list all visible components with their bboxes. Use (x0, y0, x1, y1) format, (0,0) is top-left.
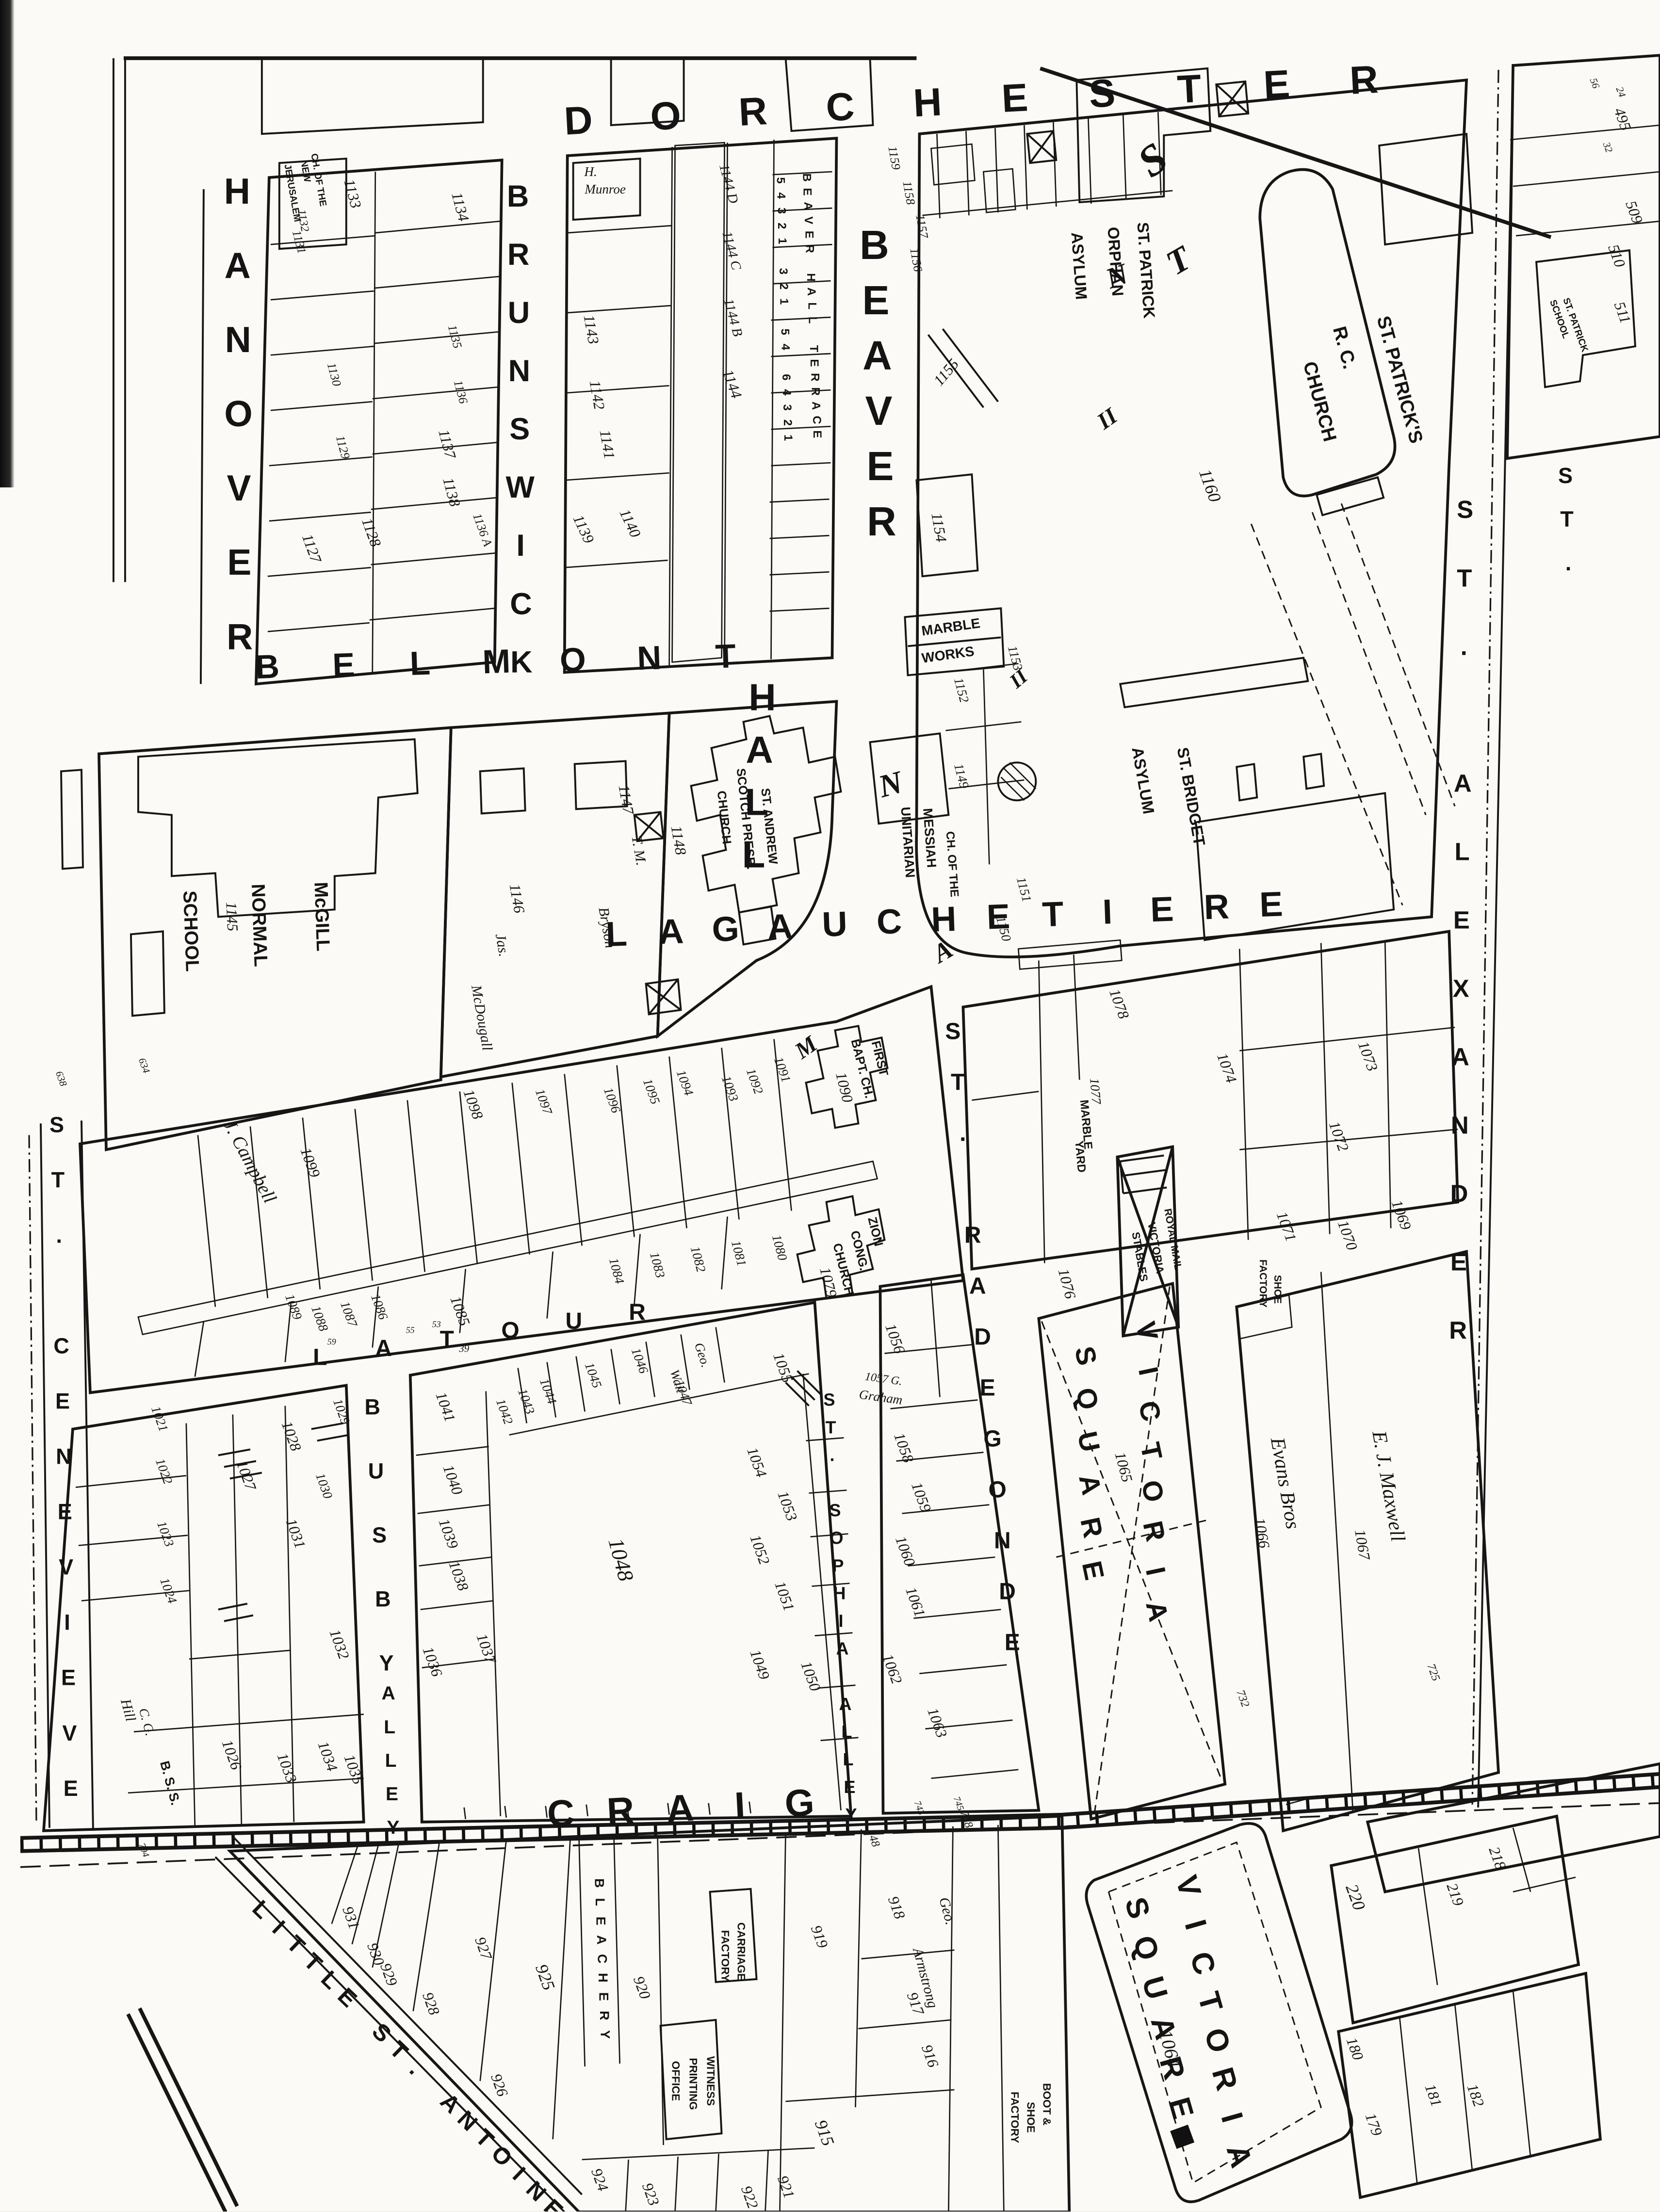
witness-2: PRINTING (687, 2058, 700, 2110)
lot-number-1039: 1039 (435, 1517, 461, 1551)
beaver-hall-terrace-label-glyph-15: R (809, 388, 822, 396)
beaver-hall-terrace-label-glyph-3: V (802, 216, 815, 224)
street-st-cenevieve-glyph-8: V (59, 1555, 73, 1580)
street-st-alexander-glyph-6: E (1453, 906, 1470, 934)
lot-number-1067: 1067 (1351, 1528, 1374, 1562)
square-monument-marker (1170, 2125, 1194, 2149)
lot-number-1033: 1033 (274, 1751, 300, 1785)
lot-number-1032: 1032 (326, 1627, 352, 1662)
lot-number-1095: 1095 (640, 1077, 663, 1106)
street-hanover-glyph-4: V (227, 468, 251, 508)
shoe-factory-1: SHOE (1272, 1275, 1283, 1304)
hanover-west-line (201, 189, 204, 684)
churchyard-dashed-paths (1251, 503, 1455, 905)
victoria-square-upper-line1-glyph-1: I (1132, 1364, 1164, 1378)
street-craig-glyph-3: I (733, 1784, 746, 1827)
street-st-alexander-glyph-5: L (1455, 838, 1470, 865)
beaver-hall-terrace-units: 543213215464321 (774, 177, 795, 441)
street-latour-glyph-5: R (629, 1300, 646, 1325)
lot-number-32: 32 (1600, 140, 1615, 154)
lot-number-1099: 1099 (297, 1145, 323, 1179)
lot-number-1158: 1158 (900, 180, 918, 206)
lot-number-1147: 1147 (615, 784, 637, 816)
lot-number-1086: 1086 (368, 1292, 391, 1322)
street-brunswick-glyph-4: S (509, 412, 530, 446)
lot-number-1146: 1146 (506, 883, 528, 915)
street-latour-glyph-0: L (313, 1345, 327, 1371)
lot-number-1134: 1134 (448, 191, 472, 224)
street-busby-glyph-1: U (368, 1459, 384, 1484)
lot-number-1093: 1093 (719, 1074, 742, 1103)
street-belmont-glyph-0: B (255, 647, 280, 686)
munroe-2: Munroe (584, 182, 625, 196)
lot-number-924: 924 (588, 2166, 612, 2194)
victoria-square-upper (1039, 1284, 1225, 1819)
street-little-st-antoine-glyph-8: T (385, 2036, 413, 2065)
street-little-st-antoine-glyph-14: O (486, 2141, 517, 2172)
lot-number-1049: 1049 (747, 1647, 773, 1682)
lot-number-638: 638 (53, 1069, 69, 1088)
lot-number-927: 927 (472, 1935, 495, 1963)
street-st-sophia-alley-glyph-11: A (839, 1694, 851, 1714)
lot-number-921: 921 (774, 2173, 798, 2200)
st-bridget-1: ST. BRIDGET (1174, 746, 1209, 847)
bleachery-label-glyph-7: R (597, 2011, 612, 2020)
beaver-hall-terrace-units-glyph-10: 5 (779, 328, 792, 335)
page-gutter-shadow (0, 0, 15, 487)
lot-number-1090: 1090 (832, 1070, 856, 1104)
graham-1: 1057 G. (864, 1370, 903, 1388)
street-st-sophia-alley-glyph-8: I (838, 1611, 843, 1631)
st-alexander-east-line (1478, 64, 1513, 1808)
armstrong-lot-lines (332, 1825, 1004, 2212)
street-st-cenevieve-glyph-9: I (64, 1610, 70, 1635)
lot-number-1081: 1081 (729, 1239, 749, 1268)
lot-number-1034: 1034 (314, 1739, 341, 1774)
stables-2: VICTORIA (1145, 1221, 1166, 1275)
st-patricks-church-footprint (1260, 170, 1395, 496)
lot-number-1036: 1036 (419, 1645, 445, 1679)
st-patricks-2: R. C. (1329, 324, 1360, 371)
shoe-factory-2: FACTORY (1257, 1259, 1269, 1308)
street-busby-glyph-2: S (372, 1523, 387, 1548)
victoria-square-upper-line1-glyph-5: R (1137, 1518, 1171, 1544)
witness-3: OFFICE (670, 2061, 682, 2101)
street-st-sophia-alley-glyph-9: A (836, 1639, 848, 1659)
cg: C. G. (136, 1707, 158, 1738)
street-dorchester-glyph-1: O (649, 94, 682, 139)
victoria-square-lower-line2-glyph-5: E (1162, 2094, 1200, 2123)
lot-number-929: 929 (377, 1961, 401, 1988)
street-little-st-antoine-glyph-11: A (435, 2088, 465, 2118)
street-lagauchetiere-glyph-8: T (1042, 895, 1064, 935)
victoria-square-lower-line1: VICTORIA (1169, 1872, 1258, 2171)
street-beaver-glyph-1: E (862, 277, 889, 323)
victoria-square-upper-line2-glyph-2: U (1071, 1429, 1106, 1455)
lot-number-39: 39 (458, 1343, 469, 1355)
ornament-s: S (1129, 133, 1176, 187)
beaver-hall-terrace-label-glyph-13: E (808, 359, 821, 367)
victoria-square-lower-line1-glyph-3: T (1191, 1988, 1229, 2015)
street-little-st-antoine-glyph-2: T (281, 1931, 309, 1959)
street-lagauchetiere-glyph-1: A (658, 912, 684, 952)
beaver-hall-terrace-label-glyph-14: R (808, 373, 821, 381)
street-st-cenevieve-glyph-12: E (64, 1776, 78, 1801)
lot-number-1071: 1071 (1273, 1209, 1300, 1243)
lot-number-1094: 1094 (674, 1068, 697, 1098)
lot-number-1142: 1142 (586, 379, 608, 411)
street-st-radegonde-glyph-2: . (960, 1120, 966, 1146)
lot-number-1159: 1159 (885, 145, 903, 171)
marble-works-1: MARBLE (921, 615, 981, 639)
laga-frontage-hatch (1018, 940, 1122, 969)
lot-number-1072: 1072 (1326, 1119, 1352, 1153)
marble-works-2: WORKS (921, 644, 976, 666)
street-busby-glyph-3: B (375, 1587, 391, 1612)
lot-number-1145: 1145 (223, 902, 241, 932)
lot-number-1027: 1027 (233, 1458, 260, 1493)
street-latour-glyph-3: O (501, 1318, 519, 1343)
dorchester-south-row (922, 112, 1172, 218)
lot-number-1026: 1026 (219, 1738, 245, 1772)
lot-number-1133: 1133 (341, 178, 364, 210)
street-beaver-glyph-2: A (863, 333, 892, 378)
lot-number-915: 915 (811, 2117, 838, 2148)
victoria-square-upper-line2: SQUARE (1069, 1343, 1110, 1582)
presbytery-footprint (1379, 134, 1472, 244)
lot-number-1029: 1029 (330, 1397, 353, 1426)
victoria-square-upper-line2-glyph-3: A (1073, 1471, 1107, 1498)
hatched-houses-dorchester (931, 144, 1015, 212)
map-canvas: DORCHESTERHANOVERBRUNSWICKBEAVERHALLBELM… (0, 0, 1660, 2212)
lot-number-1085: 1085 (447, 1293, 473, 1328)
lot-number-220: 220 (1342, 1882, 1369, 1913)
street-st-radegonde: ST.RADEGONDE (945, 1018, 1020, 1655)
street-st-radegonde-glyph-9: O (989, 1477, 1007, 1503)
boot-shoe-1: BOOT & (1041, 2083, 1053, 2125)
sw-diagonal-street (128, 2008, 237, 2212)
lot-number-928: 928 (419, 1990, 443, 2018)
beaver-hall-terrace-label-glyph-12: T (807, 345, 820, 353)
messiah-3: UNITARIAN (898, 807, 917, 878)
street-st-radegonde-glyph-0: S (945, 1018, 960, 1044)
street-little-st-antoine-glyph-7: S (367, 2018, 396, 2048)
lot-number-926: 926 (488, 2071, 511, 2099)
street-dorchester-glyph-5: E (1001, 76, 1029, 121)
street-brunswick-glyph-5: W (505, 470, 535, 504)
campbell: J. Campbell (219, 1116, 280, 1207)
ornament-m: M (790, 1031, 822, 1064)
street-st-alexander-glyph-12: R (1449, 1317, 1467, 1344)
street-st-alexander-glyph-11: E (1450, 1248, 1467, 1276)
beaver-hall-terrace-label-glyph-10: L (806, 317, 819, 324)
lot-number-1136: 1136 (451, 379, 471, 405)
street-little-st-antoine-glyph-5: E (333, 1983, 362, 2012)
rear-lot-hatch-strip (138, 1162, 878, 1335)
street-beaver-glyph-3: V (865, 388, 892, 434)
lot-number-1089: 1089 (282, 1292, 305, 1322)
lot-number-916: 916 (918, 2042, 942, 2070)
bleachery-label-glyph-6: E (597, 1992, 611, 2001)
lot-number-1065: 1065 (1111, 1450, 1136, 1484)
lot-number-1053: 1053 (774, 1488, 800, 1523)
lot-number-1129: 1129 (333, 434, 353, 461)
lot-number-1143: 1143 (580, 313, 602, 345)
street-lagauchetiere-glyph-3: A (767, 907, 794, 947)
street-busby-alley-glyph-4: Y (387, 1817, 399, 1838)
street-st-cenevieve-glyph-11: V (62, 1721, 77, 1745)
bleachery-label-glyph-8: Y (598, 2030, 613, 2039)
hill: Hill (117, 1697, 139, 1724)
street-st-cenevieve-glyph-6: N (56, 1444, 71, 1469)
st-patricks-3: CHURCH (1299, 359, 1340, 444)
beaver-hall-terrace-units-glyph-6: 3 (777, 268, 790, 274)
ornament-ii1: II (1092, 403, 1123, 435)
lot-number-182: 182 (1464, 2082, 1487, 2109)
street-hanover-glyph-2: N (225, 319, 251, 360)
lot-number-1054: 1054 (744, 1445, 770, 1479)
street-hanover-glyph-1: A (225, 245, 251, 286)
street-st-cenevieve-glyph-7: E (58, 1500, 72, 1524)
lot-number-920: 920 (630, 1974, 654, 2002)
beaver-hall-terrace-label-glyph-9: L (805, 302, 818, 309)
street-little-st-antoine-glyph-4: L (316, 1966, 344, 1995)
st-genevieve-boundary (29, 1135, 36, 1822)
street-st-alexander-glyph-8: A (1451, 1043, 1469, 1070)
bleachery-label-glyph-2: E (594, 1917, 608, 1925)
victoria-square-upper-line1-glyph-6: I (1139, 1564, 1172, 1578)
armstrong-1: Geo. (936, 1895, 959, 1926)
street-busby-alley-glyph-0: A (382, 1683, 395, 1704)
victoria-square-upper-line2-glyph-0: S (1069, 1343, 1103, 1368)
street-hanover-glyph-6: R (227, 616, 253, 657)
bleachery-label-glyph-3: A (594, 1935, 609, 1945)
beaver-hall-terrace-units-glyph-11: 4 (779, 344, 792, 351)
street-st-radegonde-glyph-8: G (983, 1426, 1001, 1452)
street-hanover: HANOVER (224, 171, 253, 657)
street-st-sophia-alley-glyph-14: E (844, 1777, 855, 1797)
lot-number-1076: 1076 (1055, 1267, 1079, 1301)
street-craig-glyph-4: G (784, 1781, 815, 1825)
street-dorchester-glyph-0: D (563, 98, 594, 144)
ne-block-lot-lines (972, 940, 1458, 1263)
street-busby-alley: ALLEY (382, 1683, 400, 1838)
beaver-hall-terrace-units-glyph-15: 3 (781, 404, 794, 411)
street-hanover-glyph-5: E (227, 542, 251, 582)
street-st-sophia-alley-glyph-15: Y (845, 1805, 857, 1824)
street-lagauchetiere-glyph-10: E (1150, 890, 1174, 930)
street-lagauchetiere-glyph-6: H (930, 900, 957, 939)
mcgill-block-outline (99, 727, 451, 1149)
street-st-alexander-glyph-4: A (1454, 769, 1472, 797)
block-d-lot-lines (76, 1406, 364, 1828)
lot-number-55: 55 (406, 1325, 415, 1335)
street-lagauchetiere-glyph-11: R (1204, 887, 1230, 927)
orphan-asylum-3: ASYLUM (1068, 232, 1090, 301)
lot-number-1077: 1077 (1087, 1078, 1104, 1106)
geo-wait-1: Geo. (692, 1341, 713, 1369)
lot-number-1023: 1023 (154, 1519, 177, 1549)
victoria-square-lower-inner-dashed (1108, 1842, 1321, 2183)
street-brunswick-glyph-1: R (507, 238, 529, 272)
beaver-hall-terrace-units-glyph-0: 5 (774, 177, 787, 183)
street-busby-alley-glyph-2: L (385, 1750, 397, 1771)
lot-number-1097: 1097 (533, 1087, 555, 1117)
lot-number-1052: 1052 (747, 1533, 773, 1567)
street-little-st-antoine-glyph-0: L (247, 1895, 276, 1924)
victoria-square-upper-line2-glyph-1: Q (1070, 1385, 1105, 1413)
street-belmont-glyph-5: N (636, 639, 662, 677)
lot-number-922: 922 (738, 2183, 762, 2211)
street-belmont-glyph-4: O (559, 641, 586, 679)
lot-number-1132: 1132 (295, 209, 311, 233)
lot-number-1141: 1141 (596, 428, 618, 460)
lot-number-1061: 1061 (902, 1585, 928, 1619)
street-little-st-antoine: LITTLEST.ANTOINE (247, 1895, 568, 2212)
street-st-radegonde-glyph-5: A (969, 1274, 986, 1299)
lot-number-1051: 1051 (771, 1579, 797, 1614)
lot-number-1096: 1096 (601, 1085, 624, 1115)
lot-number-1021: 1021 (148, 1404, 171, 1434)
lot-number-1160: 1160 (1195, 467, 1225, 505)
street-beaver-glyph-4: E (866, 443, 894, 489)
street-st-cenevieve-glyph-1: T (51, 1168, 65, 1193)
street-st-cenevieve-glyph-10: E (61, 1665, 76, 1690)
ornament-n1: N (1101, 257, 1134, 295)
street-latour-glyph-2: T (440, 1326, 454, 1352)
lot-number-1149: 1149 (951, 762, 972, 790)
street-busby-glyph-4: Y (379, 1651, 394, 1676)
street-lagauchetiere-glyph-12: E (1259, 885, 1284, 924)
x-box-dorchester (1027, 131, 1056, 163)
street-little-st-antoine-glyph-3: T (299, 1948, 327, 1977)
lot-number-923: 923 (639, 2180, 663, 2208)
victoria-square-lower-line1-glyph-1: I (1178, 1916, 1213, 1934)
lot-number-1156: 1156 (907, 247, 925, 273)
boot-shoe-3: FACTORY (1009, 2092, 1021, 2143)
street-little-st-antoine-glyph-13: T (471, 2124, 499, 2153)
street-st-alexander-glyph-10: D (1450, 1180, 1468, 1208)
beaver-hall-terrace-label-glyph-0: B (800, 173, 814, 181)
victoria-square-lower-line2-glyph-1: Q (1126, 1932, 1166, 1964)
street-dorchester-glyph-2: R (738, 89, 768, 134)
lot-number-1031: 1031 (282, 1517, 309, 1551)
lot-number-931: 931 (339, 1904, 363, 1931)
street-brunswick-glyph-3: N (508, 354, 530, 388)
street-st-alexander-glyph-0: S (1457, 496, 1473, 523)
lot-number-1022: 1022 (153, 1456, 176, 1486)
street-st-radegonde-glyph-1: T (951, 1069, 965, 1095)
street-belmont-glyph-2: L (409, 644, 431, 682)
lot-number-1082: 1082 (688, 1244, 709, 1274)
witness-1: WITNESS (705, 2056, 717, 2106)
lot-number-1083: 1083 (647, 1250, 668, 1279)
bleachery-label-glyph-5: H (596, 1973, 610, 1983)
beaver-hall-terrace-label-glyph-5: R (803, 244, 816, 253)
bleachery-label-glyph-4: C (595, 1954, 610, 1964)
street-hall-glyph-1: A (746, 728, 773, 771)
lot-number-1048: 1048 (603, 1535, 638, 1584)
lot-number-1139: 1139 (570, 512, 597, 546)
street-right-edge-st-glyph-1: T (1560, 507, 1573, 532)
lot-number-509: 509 (1622, 198, 1646, 226)
mcgill-school-1: SCHOOL (179, 890, 203, 972)
victoria-square-lower-line2-glyph-0: S (1118, 1893, 1156, 1922)
street-brunswick-glyph-2: U (508, 296, 530, 330)
lot-number-918: 918 (885, 1894, 909, 1921)
x-box-asylum (1216, 81, 1248, 116)
street-little-st-antoine-glyph-1: I (267, 1916, 290, 1938)
craig-street (20, 1774, 1660, 1867)
lot-number-1063: 1063 (924, 1706, 950, 1740)
victoria-square-upper-line1-glyph-7: A (1139, 1598, 1174, 1624)
street-st-alexander-glyph-9: N (1451, 1111, 1469, 1139)
lot-number-1154: 1154 (928, 512, 950, 544)
block-st-patrick (870, 68, 1472, 969)
street-brunswick-glyph-0: B (507, 179, 529, 213)
victoria-square-upper-line1-glyph-4: O (1135, 1477, 1170, 1505)
street-st-alexander-glyph-2: . (1461, 632, 1467, 660)
bryson-houses (480, 761, 627, 813)
street-lagauchetiere-glyph-4: U (821, 904, 848, 944)
lot-number-1044: 1044 (537, 1376, 560, 1406)
street-right-edge-st-glyph-0: S (1558, 463, 1573, 488)
evans-bros: Evans Bros (1266, 1435, 1304, 1531)
block-campbell (80, 986, 963, 1392)
ornament-n2: N (874, 764, 907, 805)
street-st-radegonde-glyph-10: N (994, 1528, 1011, 1554)
bleachery-label-glyph-0: B (592, 1878, 607, 1888)
lot-number-745: 745 (951, 1795, 966, 1812)
lot-number-1050: 1050 (797, 1659, 824, 1694)
beaver-hall-terrace-label-glyph-16: A (810, 402, 823, 410)
street-right-edge-st: ST. (1558, 463, 1574, 575)
victoria-square-paths (1042, 1287, 1222, 1816)
victoria-square-lower-line1-glyph-7: A (1220, 2141, 1259, 2171)
lot-number-1066: 1066 (1251, 1517, 1273, 1550)
street-belmont-glyph-6: T (715, 637, 736, 675)
marble-yard-2: YARD (1072, 1140, 1088, 1173)
street-busby-glyph-0: B (365, 1395, 380, 1420)
victoria-square-lower-line1-glyph-0: V (1169, 1872, 1207, 1901)
street-st-cenevieve-glyph-4: C (53, 1334, 69, 1358)
ne-block-outline (963, 931, 1458, 1269)
bleachery-label: BLEACHERY (592, 1878, 613, 2039)
street-dorchester-glyph-7: T (1176, 67, 1203, 112)
lot-number-53: 53 (432, 1320, 441, 1329)
beaver-hall-terrace-label-glyph-1: E (801, 188, 814, 195)
lot-number-1035: 1035 (341, 1752, 367, 1787)
street-craig-glyph-2: A (666, 1786, 695, 1830)
bleachery-label-glyph-1: L (593, 1898, 607, 1906)
graham-2: Graham (858, 1387, 903, 1407)
beaver-hall-terrace-label-glyph-18: E (811, 430, 824, 438)
street-st-radegonde-glyph-12: E (1005, 1630, 1020, 1656)
terrace-hatched-strip (672, 143, 725, 662)
zion-1: ZION (865, 1216, 885, 1248)
orphan-asylum-1: ST. PATRICK (1134, 222, 1158, 319)
lot-number-1042: 1042 (493, 1397, 516, 1426)
armstrong-block-outline (230, 1816, 1069, 2212)
street-belmont-glyph-1: E (332, 646, 356, 684)
lot-number-1069: 1069 (1388, 1197, 1415, 1232)
munroe-1: H. (584, 164, 597, 179)
street-latour-glyph-4: U (566, 1308, 583, 1334)
beaver-hall-terrace-units-glyph-2: 3 (775, 208, 788, 214)
street-brunswick-glyph-6: I (516, 529, 524, 563)
street-dorchester-glyph-3: C (825, 85, 856, 130)
lot-number-511: 511 (1611, 299, 1634, 325)
